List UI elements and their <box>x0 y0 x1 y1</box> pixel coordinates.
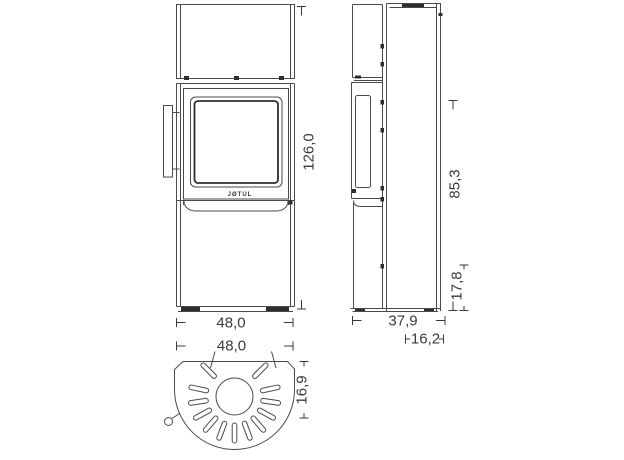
divider-mark <box>184 76 189 80</box>
dim-top-width-label: 48,0 <box>217 339 246 354</box>
divider-mark <box>279 76 284 80</box>
dim-front-width-label: 48,0 <box>216 315 245 330</box>
door-glass-outer <box>191 97 283 187</box>
door-profile <box>352 83 383 199</box>
door-glass-inner <box>195 101 279 183</box>
divider-mark <box>355 76 361 79</box>
foot-mark <box>181 307 200 311</box>
dim-side-depth-label: 37,9 <box>388 313 417 328</box>
door-handle <box>164 106 180 178</box>
dim-side-lower-height-label: 17,8 <box>450 271 465 300</box>
handle-knob <box>165 418 173 426</box>
technical-drawing-canvas: 48,0 126,0 37,9 16,2 85,3 17,8 48,0 16,9… <box>0 0 624 460</box>
stove-line-art <box>0 0 624 460</box>
dim-front-height-label: 126,0 <box>302 133 317 171</box>
rear-mark <box>439 13 443 16</box>
flue-circle <box>216 378 253 415</box>
door-glass-profile <box>356 96 371 188</box>
vent-slots <box>188 362 281 443</box>
dim-side-upper-depth-label: 16,2 <box>411 332 440 347</box>
foot-mark <box>266 307 289 311</box>
dim-side-height-label: 85,3 <box>448 169 463 198</box>
side-view <box>351 4 443 313</box>
dimension-ticks <box>177 7 469 419</box>
divider-mark <box>234 76 239 80</box>
handle-groove <box>177 201 295 212</box>
top-plate-mark <box>402 4 424 7</box>
door-logo: JØTUL <box>228 192 253 198</box>
dim-top-depth-label: 16,9 <box>295 375 310 404</box>
front-view <box>164 5 295 312</box>
top-view <box>165 352 295 450</box>
